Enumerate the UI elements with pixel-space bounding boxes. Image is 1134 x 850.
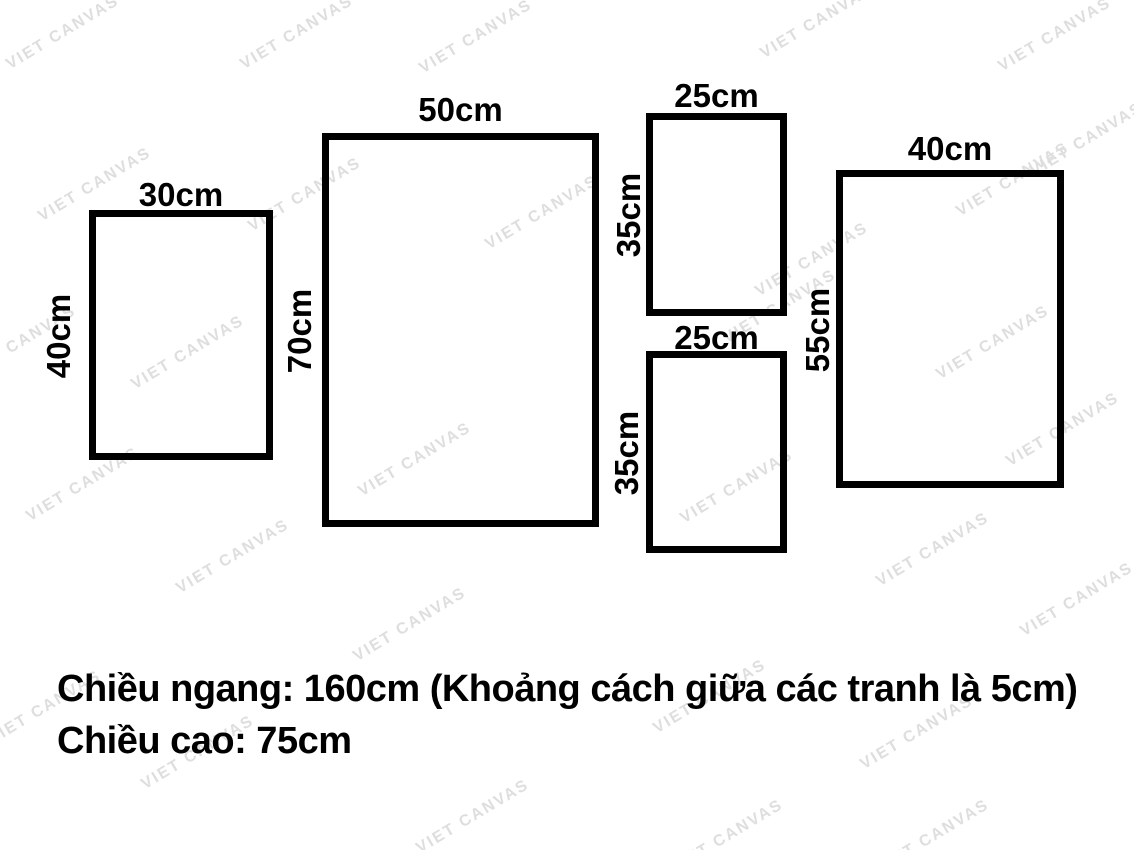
watermark-text: VIET CANVAS: [667, 796, 786, 850]
frame-50x70: 50cm: [322, 133, 599, 527]
frame-height-label: 40cm: [39, 266, 79, 406]
caption: Chiều ngang: 160cm (Khoảng cách giữa các…: [57, 663, 1077, 767]
frame-height-label: 70cm: [280, 261, 320, 401]
watermark-text: VIET CANVAS: [873, 796, 992, 850]
frame-height-label: 55cm: [798, 260, 838, 400]
watermark-text: VIET CANVAS: [757, 0, 876, 63]
watermark-text: VIET CANVAS: [1017, 559, 1134, 641]
watermark-text: VIET CANVAS: [237, 0, 356, 74]
watermark-text: VIET CANVAS: [173, 516, 292, 598]
watermark-text: VIET CANVAS: [3, 0, 122, 74]
watermark-text: VIET CANVAS: [416, 0, 535, 78]
frame-width-label: 30cm: [139, 178, 223, 211]
caption-line-horizontal: Chiều ngang: 160cm (Khoảng cách giữa các…: [57, 663, 1077, 715]
frame-width-label: 40cm: [908, 132, 992, 165]
frame-25x35-bottom: 25cm: [646, 351, 787, 553]
frame-30x40: 30cm: [89, 210, 273, 460]
frame-40x55: 40cm: [836, 170, 1064, 488]
watermark-text: VIET CANVAS: [1027, 99, 1134, 181]
watermark-text: VIET CANVAS: [350, 584, 469, 666]
watermark-text: VIET CANVAS: [413, 776, 532, 850]
frame-25x35-top: 25cm: [646, 113, 787, 316]
frame-height-label: 35cm: [607, 383, 647, 523]
caption-line-vertical: Chiều cao: 75cm: [57, 715, 1077, 767]
frame-height-label: 35cm: [609, 145, 649, 285]
frame-width-label: 25cm: [674, 321, 758, 354]
watermark-text: VIET CANVAS: [873, 509, 992, 591]
gallery-wall-layout-diagram: VIET CANVASVIET CANVASVIET CANVASVIET CA…: [0, 0, 1134, 850]
watermark-text: VIET CANVAS: [995, 0, 1114, 76]
frame-width-label: 25cm: [674, 79, 758, 112]
frame-width-label: 50cm: [418, 93, 502, 126]
